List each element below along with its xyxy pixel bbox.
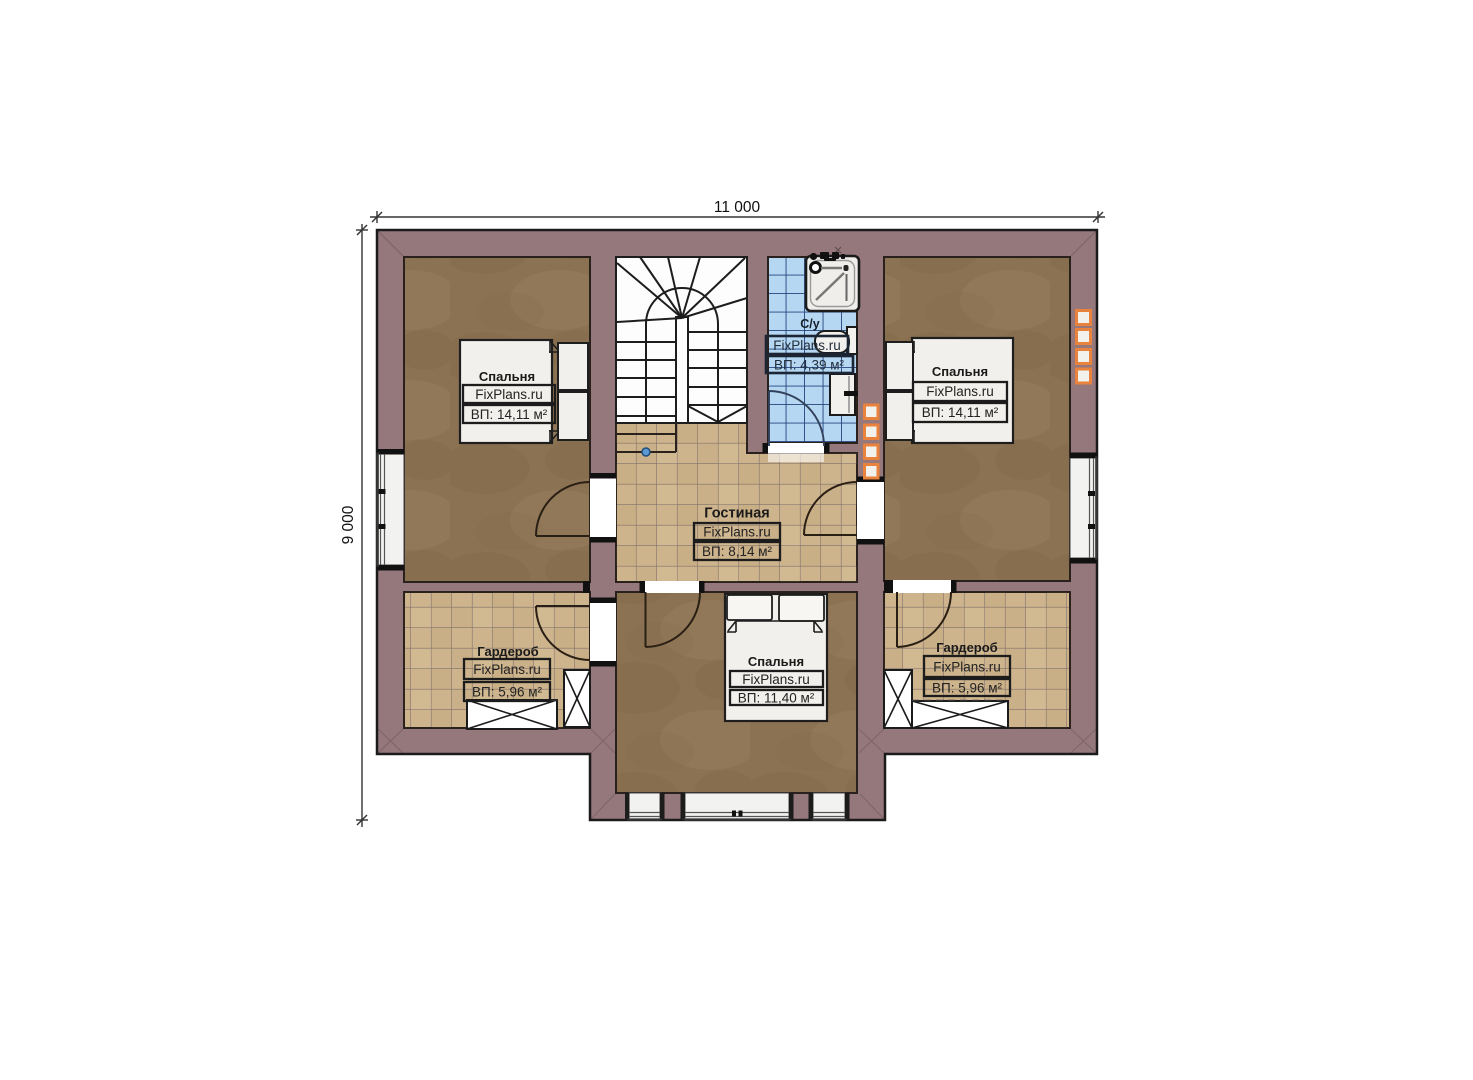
- svg-text:С/у: С/у: [800, 317, 820, 331]
- svg-text:ВП: 8,14 м²: ВП: 8,14 м²: [702, 544, 773, 559]
- svg-text:ВП: 4,39 м²: ВП: 4,39 м²: [774, 358, 845, 373]
- svg-text:Спальня: Спальня: [748, 654, 804, 669]
- svg-text:Гардероб: Гардероб: [936, 640, 997, 655]
- svg-text:Гардероб: Гардероб: [477, 644, 538, 659]
- svg-text:9 000: 9 000: [340, 505, 357, 544]
- svg-text:11 000: 11 000: [714, 199, 761, 216]
- svg-text:ВП: 14,11 м²: ВП: 14,11 м²: [922, 405, 999, 420]
- svg-text:FixPlans.ru: FixPlans.ru: [742, 672, 810, 687]
- svg-text:FixPlans.ru: FixPlans.ru: [926, 384, 994, 399]
- svg-text:Гостиная: Гостиная: [704, 506, 770, 522]
- svg-text:Спальня: Спальня: [932, 364, 988, 379]
- svg-text:FixPlans.ru: FixPlans.ru: [473, 662, 541, 677]
- svg-text:FixPlans.ru: FixPlans.ru: [475, 387, 543, 402]
- svg-text:ВП: 11,40 м²: ВП: 11,40 м²: [738, 691, 815, 706]
- svg-text:Спальня: Спальня: [479, 369, 535, 384]
- svg-text:FixPlans.ru: FixPlans.ru: [933, 660, 1001, 675]
- svg-text:ВП: 14,11 м²: ВП: 14,11 м²: [471, 407, 548, 422]
- svg-text:ВП: 5,96 м²: ВП: 5,96 м²: [472, 685, 543, 700]
- svg-text:FixPlans.ru: FixPlans.ru: [773, 338, 841, 353]
- svg-text:FixPlans.ru: FixPlans.ru: [703, 525, 771, 540]
- svg-text:ВП: 5,96 м²: ВП: 5,96 м²: [932, 681, 1003, 696]
